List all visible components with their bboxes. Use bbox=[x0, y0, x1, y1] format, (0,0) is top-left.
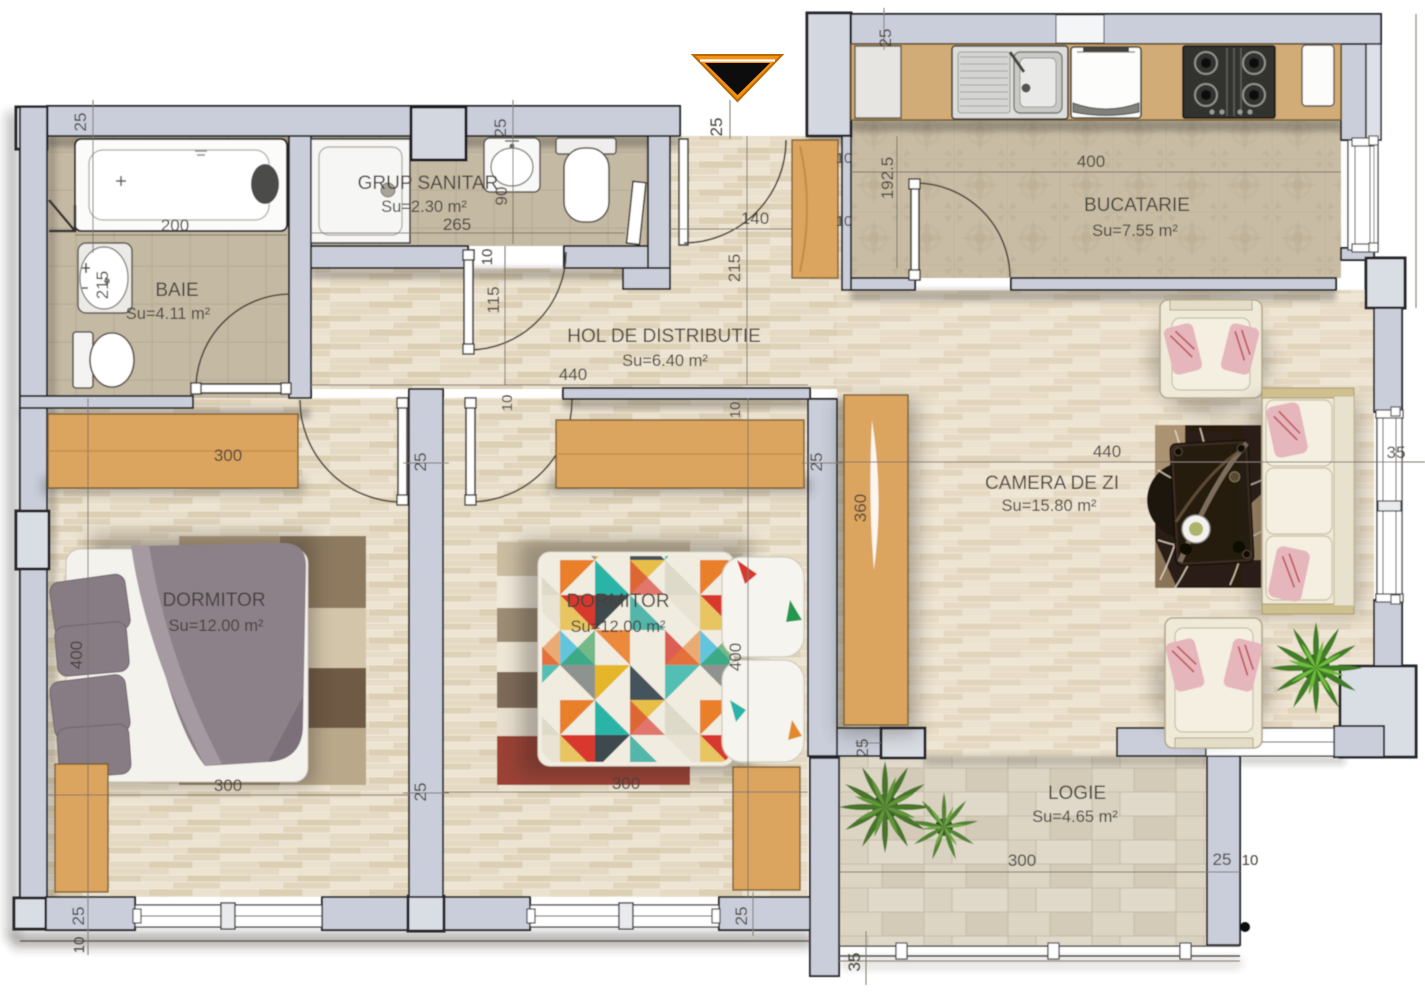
svg-text:25: 25 bbox=[71, 113, 90, 132]
svg-text:GRUP SANITAR: GRUP SANITAR bbox=[358, 173, 499, 194]
svg-text:25: 25 bbox=[876, 29, 895, 48]
svg-text:300: 300 bbox=[1008, 851, 1036, 870]
svg-text:10: 10 bbox=[836, 213, 853, 230]
svg-text:400: 400 bbox=[726, 643, 745, 671]
svg-text:200: 200 bbox=[161, 216, 189, 235]
svg-text:10: 10 bbox=[71, 937, 88, 954]
svg-text:BUCATARIE: BUCATARIE bbox=[1084, 195, 1190, 216]
svg-text:400: 400 bbox=[1077, 152, 1105, 171]
svg-text:BAIE: BAIE bbox=[155, 280, 198, 301]
svg-text:10: 10 bbox=[727, 402, 744, 419]
svg-text:25: 25 bbox=[732, 907, 751, 926]
svg-text:Su=12.00 m²: Su=12.00 m² bbox=[169, 617, 264, 635]
svg-text:Su=4.11 m²: Su=4.11 m² bbox=[126, 305, 211, 323]
svg-text:25: 25 bbox=[853, 739, 872, 758]
svg-text:25: 25 bbox=[69, 907, 88, 926]
svg-text:35: 35 bbox=[1387, 443, 1406, 462]
svg-text:215: 215 bbox=[93, 271, 112, 299]
svg-text:Su=2.30 m²: Su=2.30 m² bbox=[381, 198, 467, 216]
svg-text:25: 25 bbox=[707, 118, 726, 137]
svg-text:10: 10 bbox=[836, 150, 853, 167]
svg-text:192.5: 192.5 bbox=[878, 157, 897, 200]
svg-text:400: 400 bbox=[67, 641, 86, 669]
svg-text:Su=7.55 m²: Su=7.55 m² bbox=[1092, 222, 1178, 240]
svg-text:Su=4.65 m²: Su=4.65 m² bbox=[1032, 808, 1118, 826]
svg-text:300: 300 bbox=[612, 774, 640, 793]
svg-text:25: 25 bbox=[411, 783, 430, 802]
svg-text:10: 10 bbox=[1242, 852, 1259, 869]
svg-text:25: 25 bbox=[491, 119, 510, 138]
svg-text:140: 140 bbox=[741, 209, 769, 228]
svg-text:115: 115 bbox=[484, 286, 503, 313]
svg-text:35: 35 bbox=[845, 953, 864, 972]
svg-text:300: 300 bbox=[214, 776, 242, 795]
svg-text:DORMITOR: DORMITOR bbox=[162, 590, 265, 611]
svg-text:CAMERA DE ZI: CAMERA DE ZI bbox=[985, 473, 1119, 494]
svg-text:HOL DE DISTRIBUTIE: HOL DE DISTRIBUTIE bbox=[567, 326, 761, 347]
svg-text:Su=6.40 m²: Su=6.40 m² bbox=[622, 352, 708, 370]
svg-text:90: 90 bbox=[492, 187, 511, 206]
svg-text:Su=12.00 m²: Su=12.00 m² bbox=[571, 618, 666, 636]
svg-text:440: 440 bbox=[1093, 442, 1121, 461]
svg-text:Su=15.80 m²: Su=15.80 m² bbox=[1002, 497, 1097, 515]
svg-text:360: 360 bbox=[851, 494, 870, 522]
svg-text:DORMITOR: DORMITOR bbox=[566, 591, 669, 612]
svg-text:10: 10 bbox=[499, 395, 516, 412]
svg-text:10: 10 bbox=[479, 249, 496, 266]
svg-text:25: 25 bbox=[411, 453, 430, 472]
svg-text:LOGIE: LOGIE bbox=[1048, 783, 1106, 804]
svg-text:25: 25 bbox=[807, 453, 826, 472]
svg-text:25: 25 bbox=[1213, 850, 1232, 869]
svg-text:265: 265 bbox=[443, 215, 471, 234]
svg-text:440: 440 bbox=[559, 365, 587, 384]
svg-text:215: 215 bbox=[725, 254, 744, 282]
svg-text:300: 300 bbox=[214, 446, 242, 465]
